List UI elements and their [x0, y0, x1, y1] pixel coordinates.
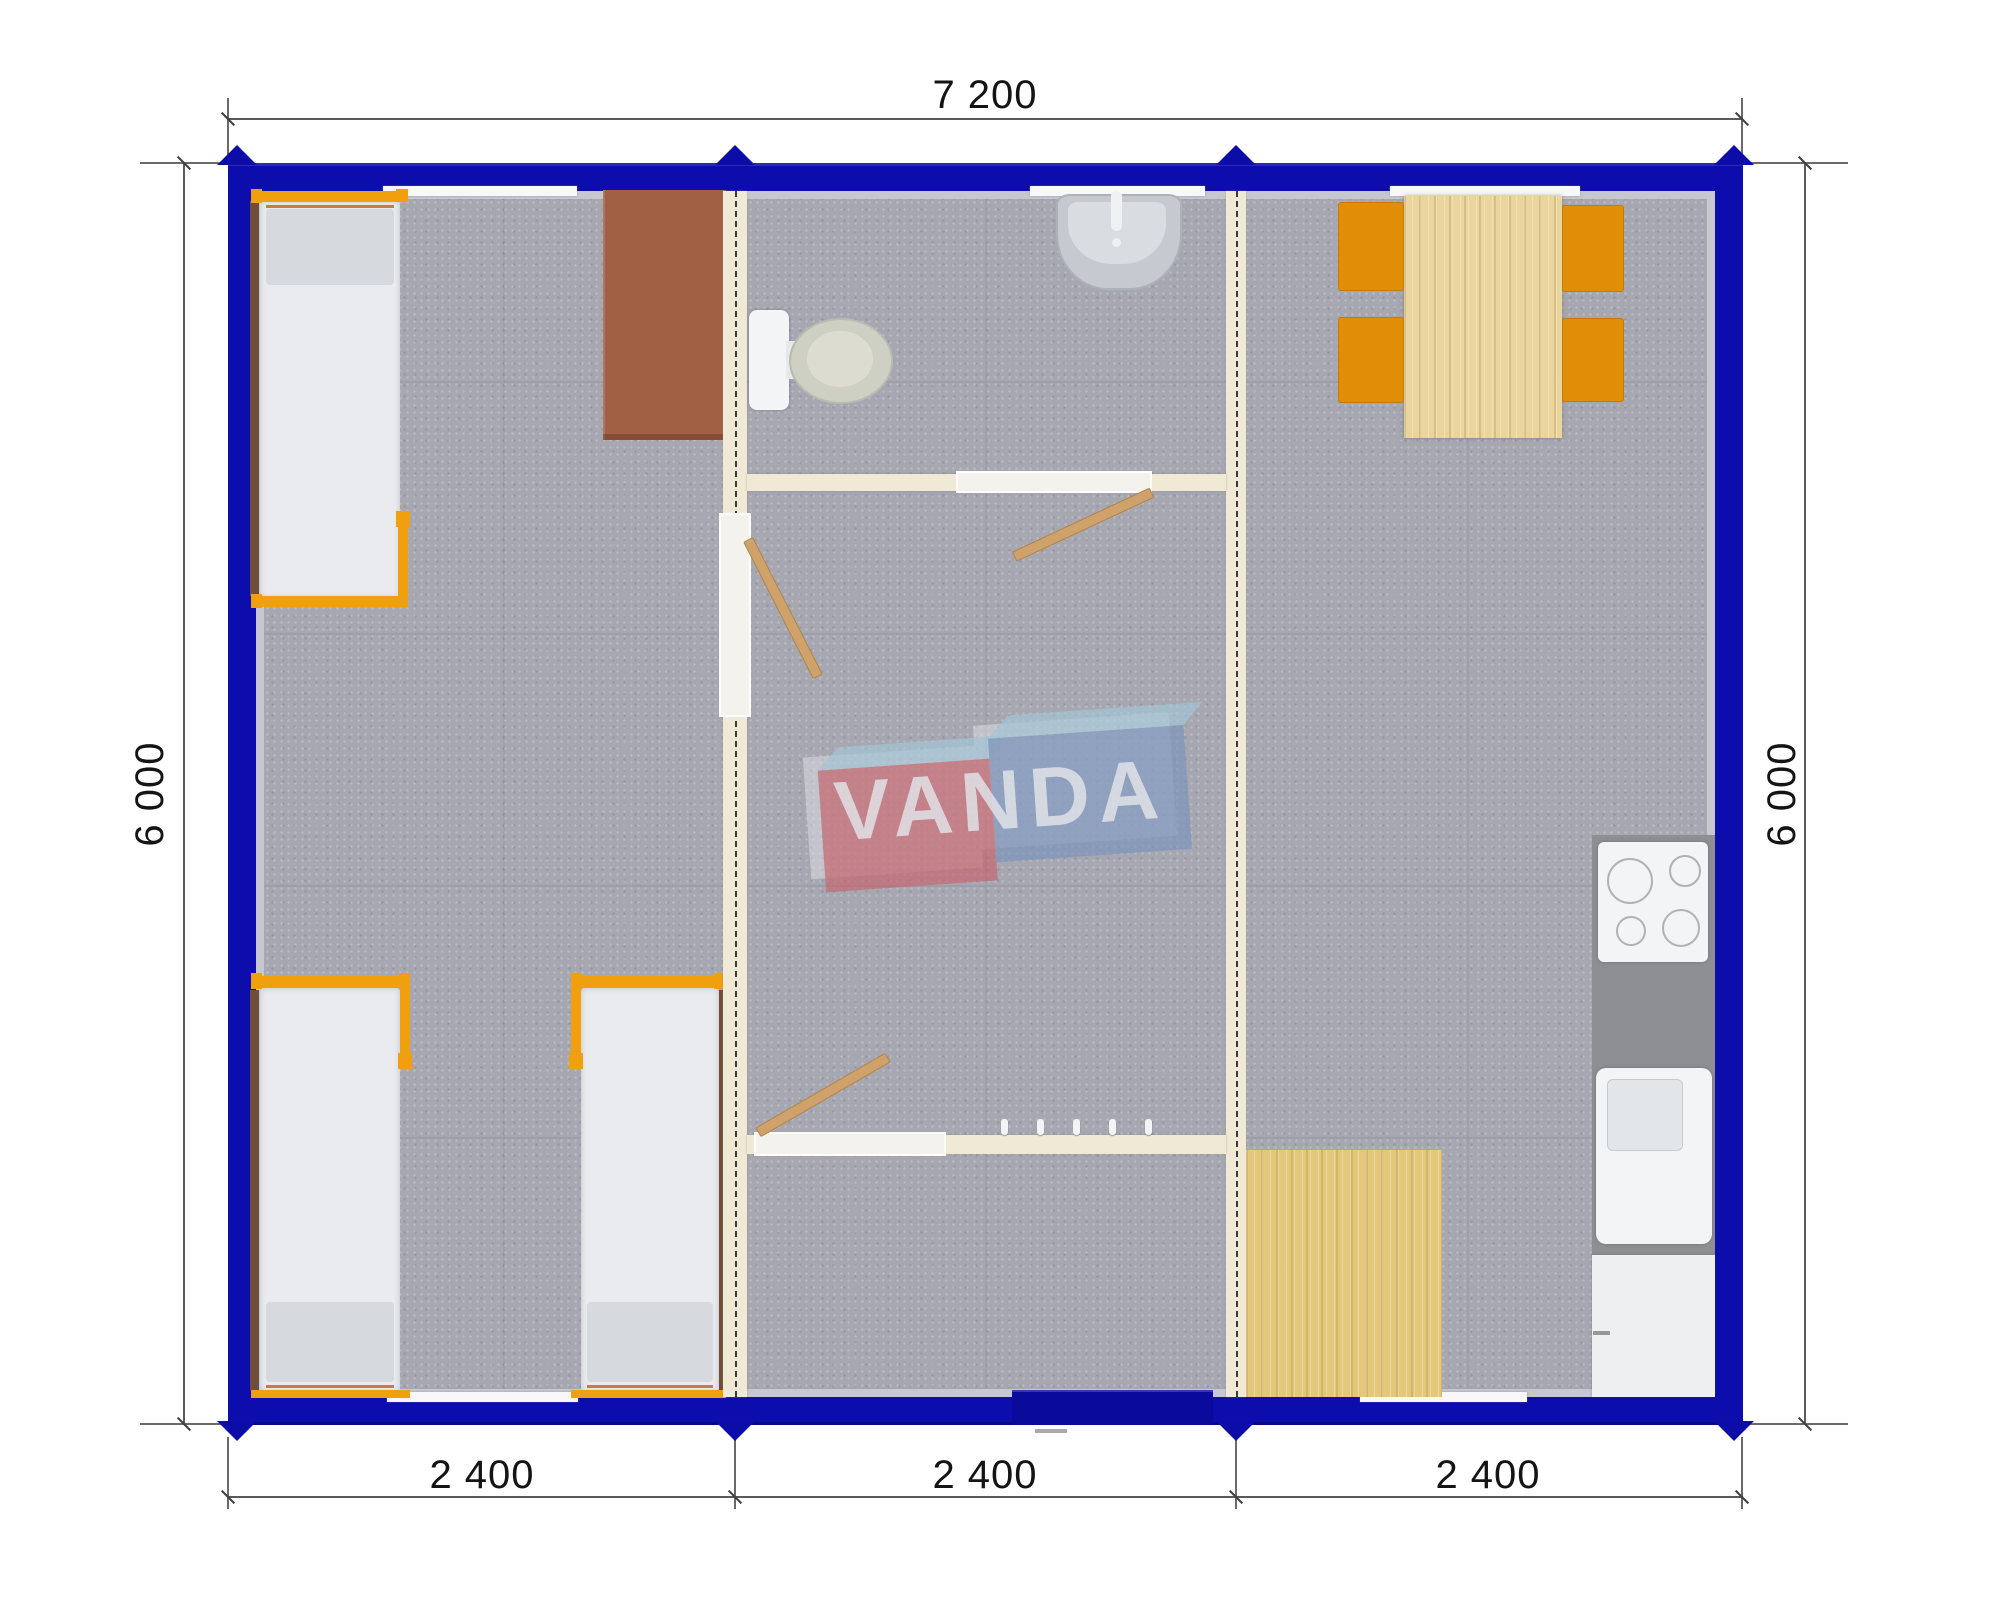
- burner-icon: [1669, 855, 1701, 887]
- faucet-dot: [1112, 238, 1121, 247]
- bed-frame-corner: [251, 189, 262, 203]
- dimension-line-right: [1804, 163, 1806, 1425]
- module-joint-marker: [715, 145, 755, 165]
- logo-letters-red: VAN: [831, 751, 1032, 858]
- floor-mat: [1246, 1150, 1442, 1397]
- faucet-icon: [1111, 191, 1122, 231]
- module-joint-marker: [715, 1421, 755, 1441]
- bed-frame-bracket: [400, 988, 410, 1058]
- coat-hook: [1037, 1119, 1044, 1135]
- bed-frame-rail: [251, 1390, 410, 1398]
- dining-chair: [1562, 205, 1624, 292]
- coat-hook: [1145, 1119, 1152, 1135]
- coat-hook: [1073, 1119, 1080, 1135]
- bed-frame-corner: [251, 973, 262, 989]
- floor-plan-canvas: 7 200 6 000 6 000 2 400 2 400 2 400: [0, 0, 2000, 1597]
- bed-frame-corner: [571, 973, 582, 989]
- bed-frame-corner: [569, 1053, 583, 1069]
- bed-frame-rail: [251, 976, 410, 988]
- module-joint-marker: [1714, 145, 1754, 165]
- window-top-left: [383, 186, 577, 196]
- logo-letters-blue: DA: [1026, 741, 1170, 844]
- bed-frame-corner: [396, 511, 410, 527]
- bed-frame-corner: [399, 973, 410, 989]
- coat-hook: [1001, 1119, 1008, 1135]
- toilet-bowl-inner: [807, 331, 873, 387]
- burner-icon: [1607, 858, 1653, 904]
- coat-hook: [1109, 1119, 1116, 1135]
- desk: [603, 190, 726, 440]
- bed-frame-corner: [398, 1053, 412, 1069]
- bed-side-rail: [250, 990, 259, 1390]
- bed-pillow: [266, 209, 394, 285]
- burner-icon: [1616, 916, 1646, 946]
- dimension-label-right: 6 000: [1762, 714, 1802, 874]
- dining-table: [1404, 196, 1562, 438]
- bed-frame-rail: [251, 596, 408, 607]
- entrance-door: [1012, 1390, 1213, 1425]
- bed-frame-rail: [251, 191, 408, 202]
- module-joint-marker: [1216, 145, 1256, 165]
- dimension-line-top: [228, 118, 1743, 120]
- partition-wall-right: [1226, 191, 1246, 1397]
- partition-wall-left: [723, 191, 747, 1397]
- vanda-watermark: VANDA: [794, 688, 1206, 905]
- dining-chair: [1338, 317, 1404, 403]
- extension-line: [1743, 162, 1848, 164]
- wall-centerline: [1236, 191, 1238, 1397]
- bed-footboard-line: [266, 1385, 394, 1388]
- module-joint-marker: [1714, 1421, 1754, 1441]
- module-joint-marker: [217, 1421, 257, 1441]
- bed-frame-bracket: [571, 988, 581, 1058]
- dimension-line-left: [183, 163, 185, 1425]
- cooktop: [1598, 842, 1708, 962]
- module-joint-marker: [217, 145, 257, 165]
- wall-centerline: [735, 191, 737, 1397]
- module-joint-marker: [1216, 1421, 1256, 1441]
- dimension-label-module-3: 2 400: [1388, 1455, 1588, 1495]
- dimension-label-module-2: 2 400: [885, 1455, 1085, 1495]
- bed-pillow: [587, 1302, 713, 1382]
- dining-chair: [1338, 202, 1404, 291]
- toilet-tank: [749, 310, 789, 410]
- entrance-door-threshold: [1035, 1429, 1067, 1433]
- dining-chair: [1562, 318, 1624, 402]
- window-bottom-left: [387, 1392, 578, 1402]
- base-cabinet: [1592, 1255, 1715, 1397]
- dimension-label-top: 7 200: [885, 75, 1085, 115]
- window-top-right: [1390, 186, 1580, 196]
- dimension-label-left: 6 000: [130, 714, 170, 874]
- extension-line: [1743, 1423, 1848, 1425]
- cabinet-handle: [1593, 1331, 1610, 1335]
- dimension-label-module-1: 2 400: [382, 1455, 582, 1495]
- bed-side-rail: [250, 201, 259, 596]
- burner-icon: [1662, 909, 1700, 947]
- kitchen-sink-basin: [1607, 1079, 1683, 1151]
- bed-frame-bracket: [398, 518, 408, 598]
- bed-frame-rail: [571, 976, 726, 988]
- bed-frame-corner: [251, 594, 262, 608]
- bed-footboard-line: [587, 1385, 713, 1388]
- door-opening-vestibule: [754, 1132, 946, 1156]
- bed-frame-rail: [571, 1390, 726, 1398]
- bed-pillow: [266, 1302, 394, 1382]
- bed-frame-corner: [396, 189, 408, 202]
- door-opening-bathroom: [956, 471, 1152, 493]
- bed-headboard-line: [266, 205, 394, 208]
